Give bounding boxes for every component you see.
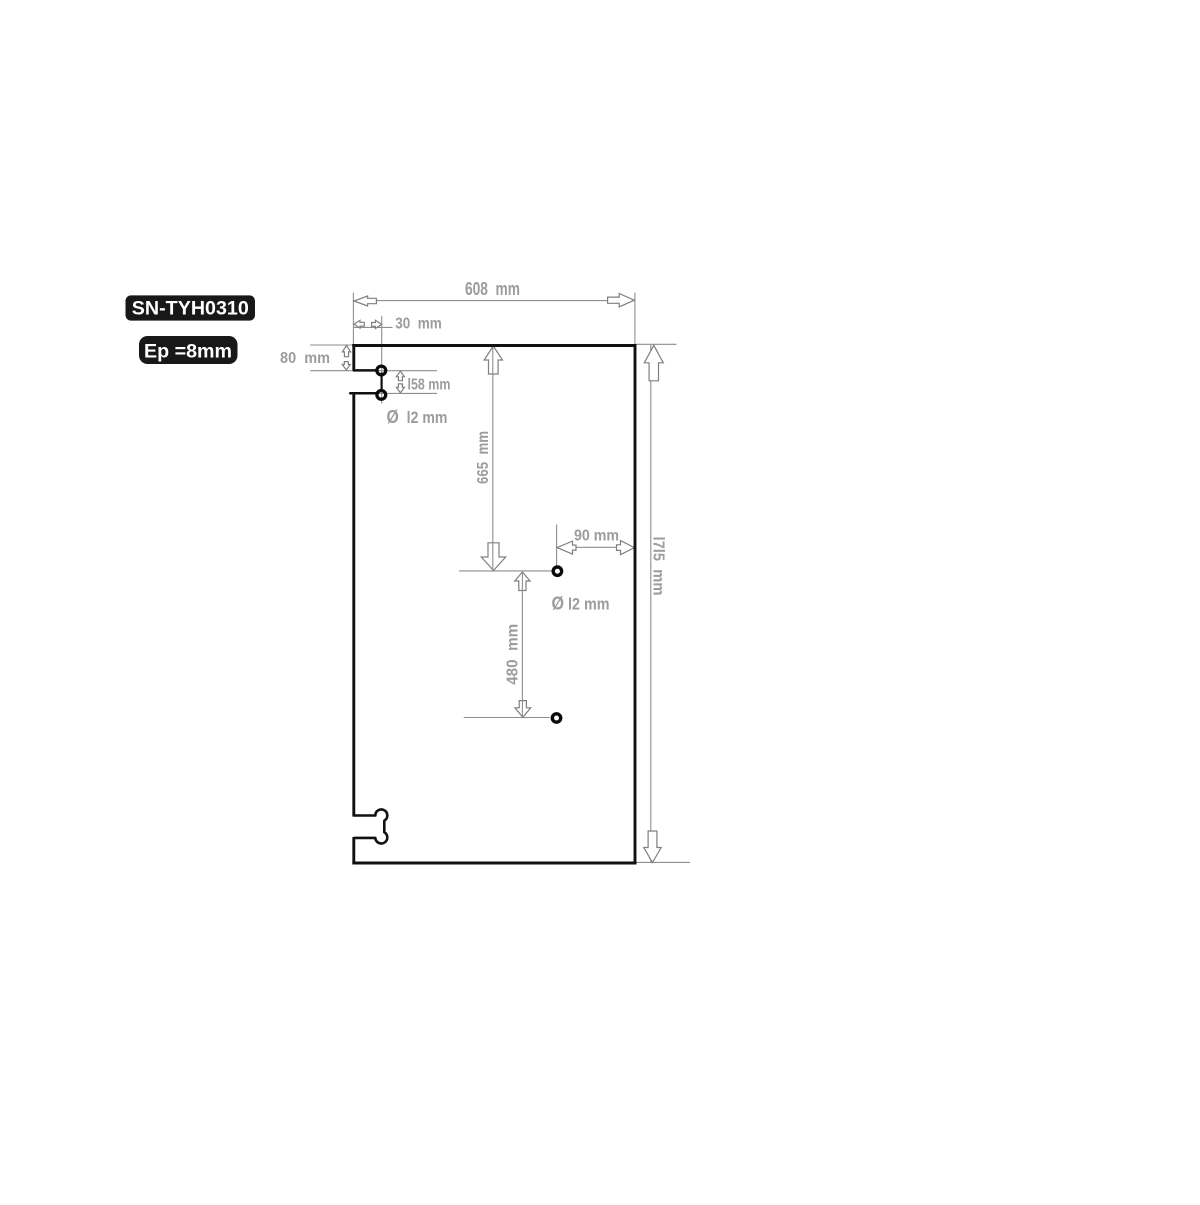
svg-text:Ø l2 mm: Ø l2 mm [552, 593, 610, 614]
svg-text:Ep =8mm: Ep =8mm [144, 341, 232, 363]
svg-text:SN-TYH0310: SN-TYH0310 [132, 298, 249, 320]
svg-text:l7l5 mm: l7l5 mm [650, 537, 667, 596]
svg-text:80 mm: 80 mm [280, 350, 330, 367]
svg-text:Ø l2 mm: Ø l2 mm [387, 406, 448, 427]
svg-text:30 mm: 30 mm [395, 316, 442, 333]
svg-text:665 mm: 665 mm [475, 431, 492, 484]
svg-text:480 mm: 480 mm [504, 624, 521, 685]
svg-text:l58 mm: l58 mm [408, 377, 451, 394]
svg-text:90 mm: 90 mm [574, 528, 619, 545]
svg-text:608 mm: 608 mm [465, 279, 520, 299]
